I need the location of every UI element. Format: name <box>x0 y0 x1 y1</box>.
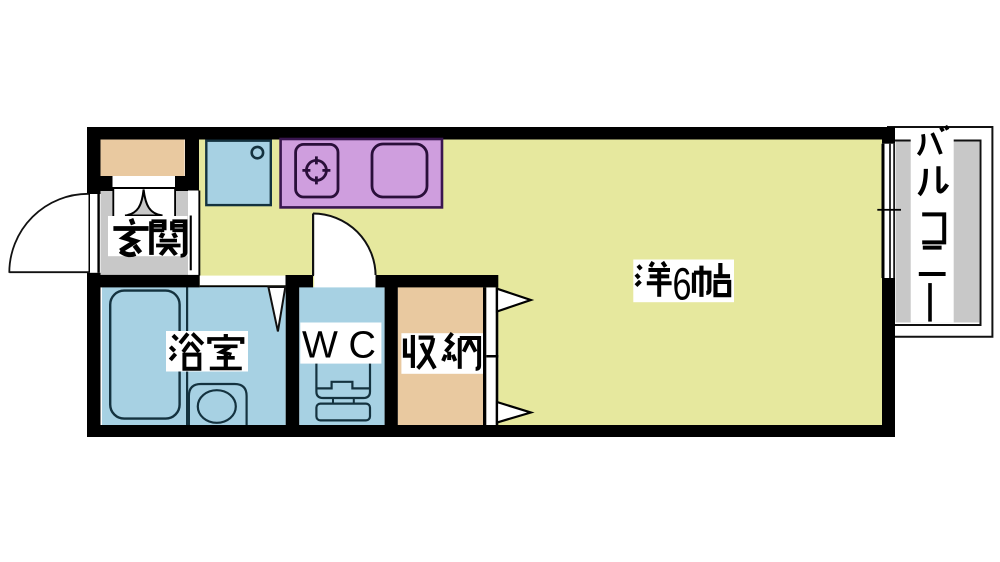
svg-text:W: W <box>302 325 338 367</box>
svg-text:C: C <box>349 325 376 367</box>
svg-text:6: 6 <box>673 259 692 310</box>
